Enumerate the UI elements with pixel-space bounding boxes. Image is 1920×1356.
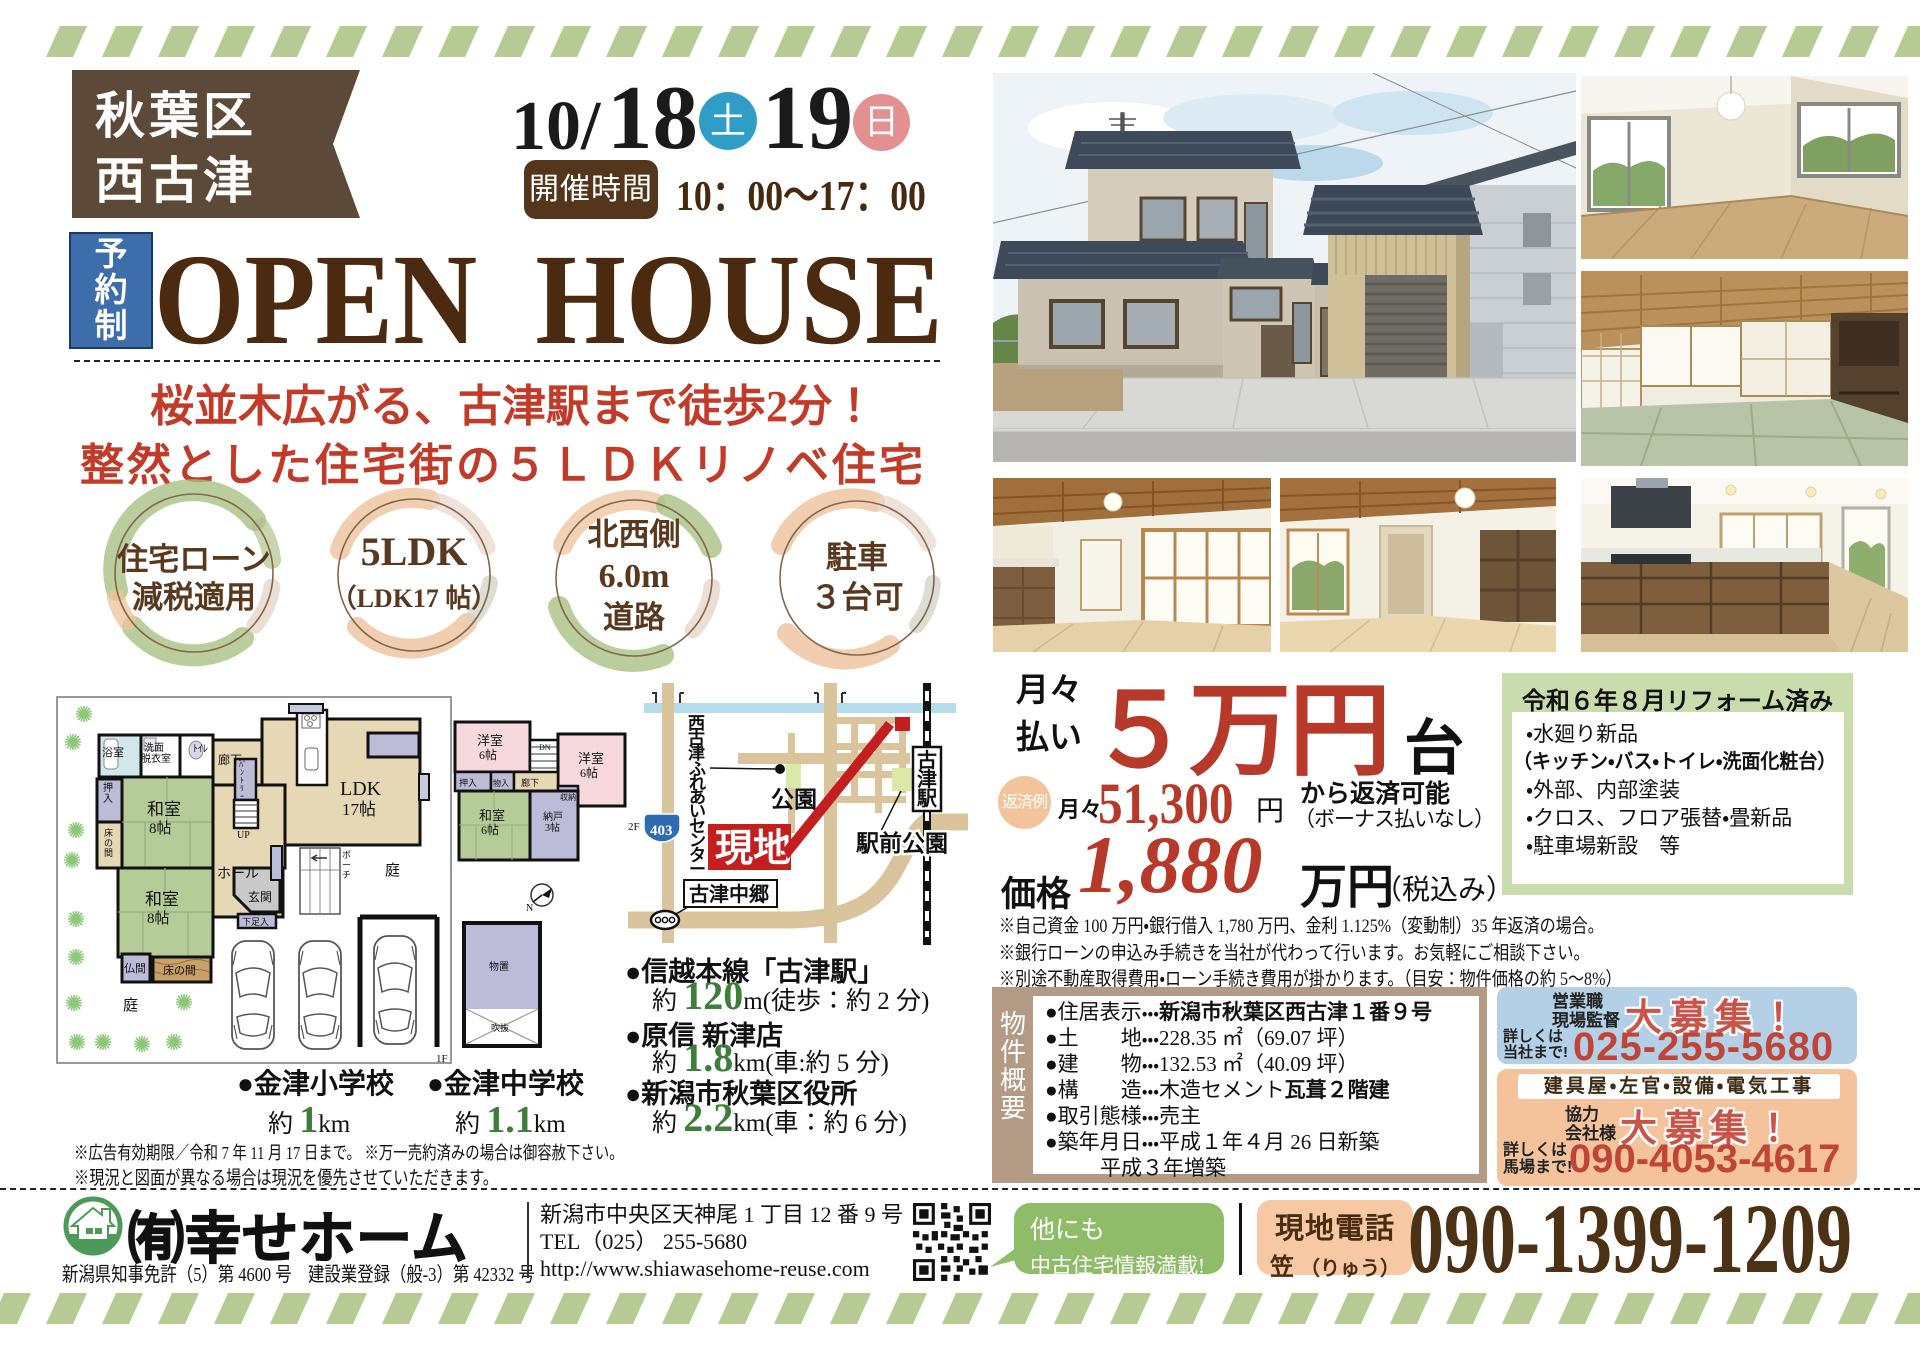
svg-text:8帖: 8帖 xyxy=(147,910,170,927)
svg-text:UP: UP xyxy=(237,830,250,841)
svg-text:物置: 物置 xyxy=(489,960,509,973)
svg-text:ホール: ホール xyxy=(217,867,259,882)
svg-text:17帖: 17帖 xyxy=(342,800,376,819)
svg-text:5LDK: 5LDK xyxy=(361,529,468,574)
svg-text:北西側: 北西側 xyxy=(588,517,681,552)
svg-text:N: N xyxy=(526,903,533,914)
svg-text:西古津ふれあいセンター: 西古津ふれあいセンター xyxy=(688,714,706,879)
svg-text:和室: 和室 xyxy=(145,890,179,909)
svg-text:古津駅: 古津駅 xyxy=(916,748,937,810)
svg-text:6帖: 6帖 xyxy=(479,747,497,762)
svg-text:駐車: 駐車 xyxy=(826,540,888,575)
svg-text:収納: 収納 xyxy=(560,792,576,802)
svg-text:仏間: 仏間 xyxy=(124,962,146,975)
svg-text:床の間: 床の間 xyxy=(163,964,196,977)
svg-text:押入: 押入 xyxy=(459,777,477,788)
svg-text:玄関: 玄関 xyxy=(248,890,272,904)
svg-text:3帖: 3帖 xyxy=(545,821,560,834)
svg-text:403: 403 xyxy=(650,823,673,839)
svg-text:下足入: 下足入 xyxy=(242,917,269,927)
svg-text:古津中郷: 古津中郷 xyxy=(689,882,769,906)
svg-text:浴室: 浴室 xyxy=(102,746,124,759)
svg-text:住宅ローン: 住宅ローン xyxy=(116,542,270,577)
svg-text:和室: 和室 xyxy=(479,808,505,823)
svg-text:減税適用: 減税適用 xyxy=(132,580,256,615)
svg-text:DN: DN xyxy=(539,743,551,752)
svg-text:（LDK17 帖）: （LDK17 帖） xyxy=(331,584,498,613)
svg-text:物入: 物入 xyxy=(493,778,509,788)
svg-text:脱衣室: 脱衣室 xyxy=(141,752,171,765)
svg-text:吹抜: 吹抜 xyxy=(491,1022,509,1033)
svg-text:道路: 道路 xyxy=(603,600,666,635)
svg-text:6帖: 6帖 xyxy=(481,822,499,837)
svg-text:6帖: 6帖 xyxy=(580,765,598,780)
svg-text:和室: 和室 xyxy=(147,800,181,819)
svg-text:洋室: 洋室 xyxy=(578,751,604,766)
svg-text:庭: 庭 xyxy=(123,997,138,1014)
svg-text:駅前公園: 駅前公園 xyxy=(856,830,948,856)
svg-text:秋葉区: 秋葉区 xyxy=(95,88,257,144)
svg-text:３台可: ３台可 xyxy=(811,580,904,615)
svg-text:ポーチ: ポーチ xyxy=(342,850,351,880)
svg-text:洋室: 洋室 xyxy=(477,733,503,748)
svg-text:西古津: 西古津 xyxy=(95,153,257,209)
svg-text:現地: 現地 xyxy=(715,828,791,870)
svg-text:6.0m: 6.0m xyxy=(599,558,670,595)
svg-text:廊下: 廊下 xyxy=(521,777,539,788)
svg-text:LDK: LDK xyxy=(340,778,382,800)
svg-text:8帖: 8帖 xyxy=(149,820,172,837)
svg-text:納戸: 納戸 xyxy=(543,810,563,823)
svg-text:庭: 庭 xyxy=(385,862,400,879)
svg-text:床の間: 床の間 xyxy=(104,828,113,858)
svg-text:ﾄｲﾚ: ﾄｲﾚ xyxy=(193,744,208,755)
svg-text:洗面: 洗面 xyxy=(144,742,164,754)
svg-text:押入: 押入 xyxy=(103,781,113,805)
svg-text:公園: 公園 xyxy=(771,787,817,812)
